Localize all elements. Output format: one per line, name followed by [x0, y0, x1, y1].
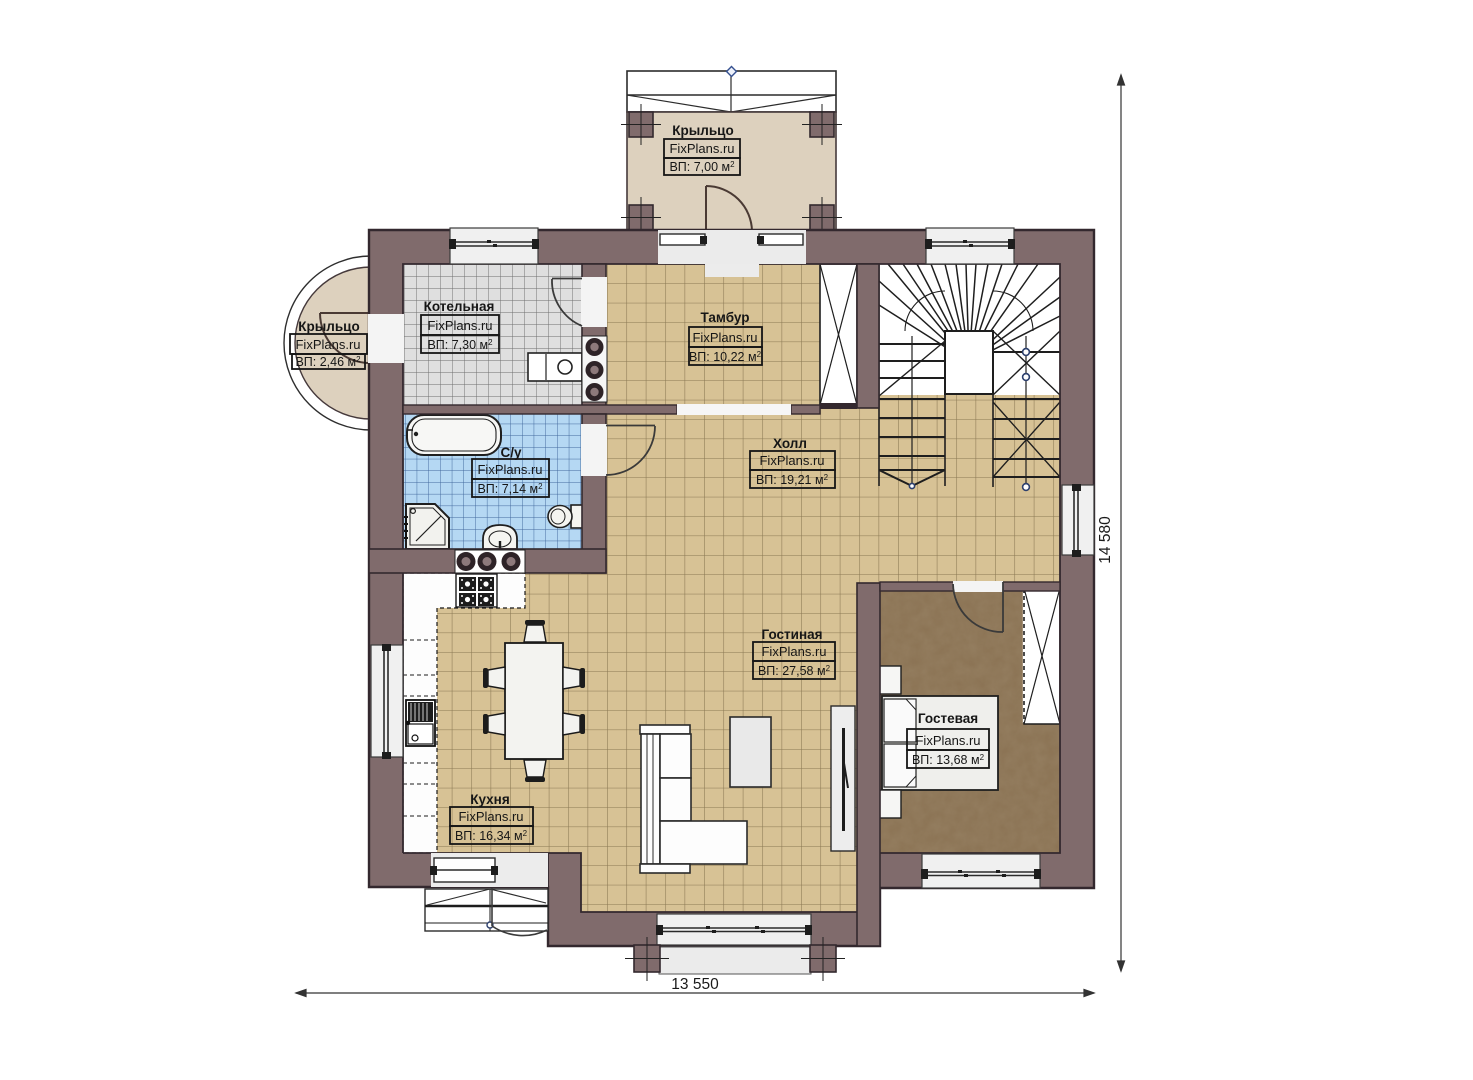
svg-text:ВП: 16,34 м2: ВП: 16,34 м2	[455, 829, 528, 843]
svg-text:ВП: 7,14 м2: ВП: 7,14 м2	[477, 482, 543, 496]
svg-text:FixPlans.ru: FixPlans.ru	[669, 141, 734, 156]
svg-text:Кухня: Кухня	[470, 792, 509, 807]
svg-text:Тамбур: Тамбур	[701, 310, 750, 325]
svg-text:14 580: 14 580	[1097, 516, 1114, 564]
svg-text:ВП: 10,22 м2: ВП: 10,22 м2	[689, 350, 762, 364]
svg-text:FixPlans.ru: FixPlans.ru	[427, 318, 492, 333]
svg-text:ВП: 2,46 м2: ВП: 2,46 м2	[295, 355, 361, 369]
svg-text:Крыльцо: Крыльцо	[298, 319, 359, 334]
svg-text:ВП: 7,00 м2: ВП: 7,00 м2	[669, 160, 735, 174]
svg-text:FixPlans.ru: FixPlans.ru	[759, 453, 824, 468]
svg-text:ВП: 7,30 м2: ВП: 7,30 м2	[427, 338, 493, 352]
svg-text:С/у: С/у	[500, 445, 522, 460]
svg-text:FixPlans.ru: FixPlans.ru	[295, 337, 360, 352]
svg-text:ВП: 19,21 м2: ВП: 19,21 м2	[756, 473, 829, 487]
svg-text:FixPlans.ru: FixPlans.ru	[692, 330, 757, 345]
svg-text:FixPlans.ru: FixPlans.ru	[458, 809, 523, 824]
svg-text:ВП: 27,58 м2: ВП: 27,58 м2	[758, 664, 831, 678]
svg-text:FixPlans.ru: FixPlans.ru	[761, 644, 826, 659]
svg-text:FixPlans.ru: FixPlans.ru	[915, 733, 980, 748]
svg-text:FixPlans.ru: FixPlans.ru	[477, 462, 542, 477]
svg-text:ВП: 13,68 м2: ВП: 13,68 м2	[912, 753, 985, 767]
svg-text:Холл: Холл	[773, 436, 807, 451]
svg-text:Гостиная: Гостиная	[761, 627, 822, 642]
svg-text:Крыльцо: Крыльцо	[672, 123, 733, 138]
svg-text:Котельная: Котельная	[424, 299, 495, 314]
svg-text:Гостевая: Гостевая	[918, 711, 978, 726]
svg-text:13 550: 13 550	[671, 976, 719, 993]
